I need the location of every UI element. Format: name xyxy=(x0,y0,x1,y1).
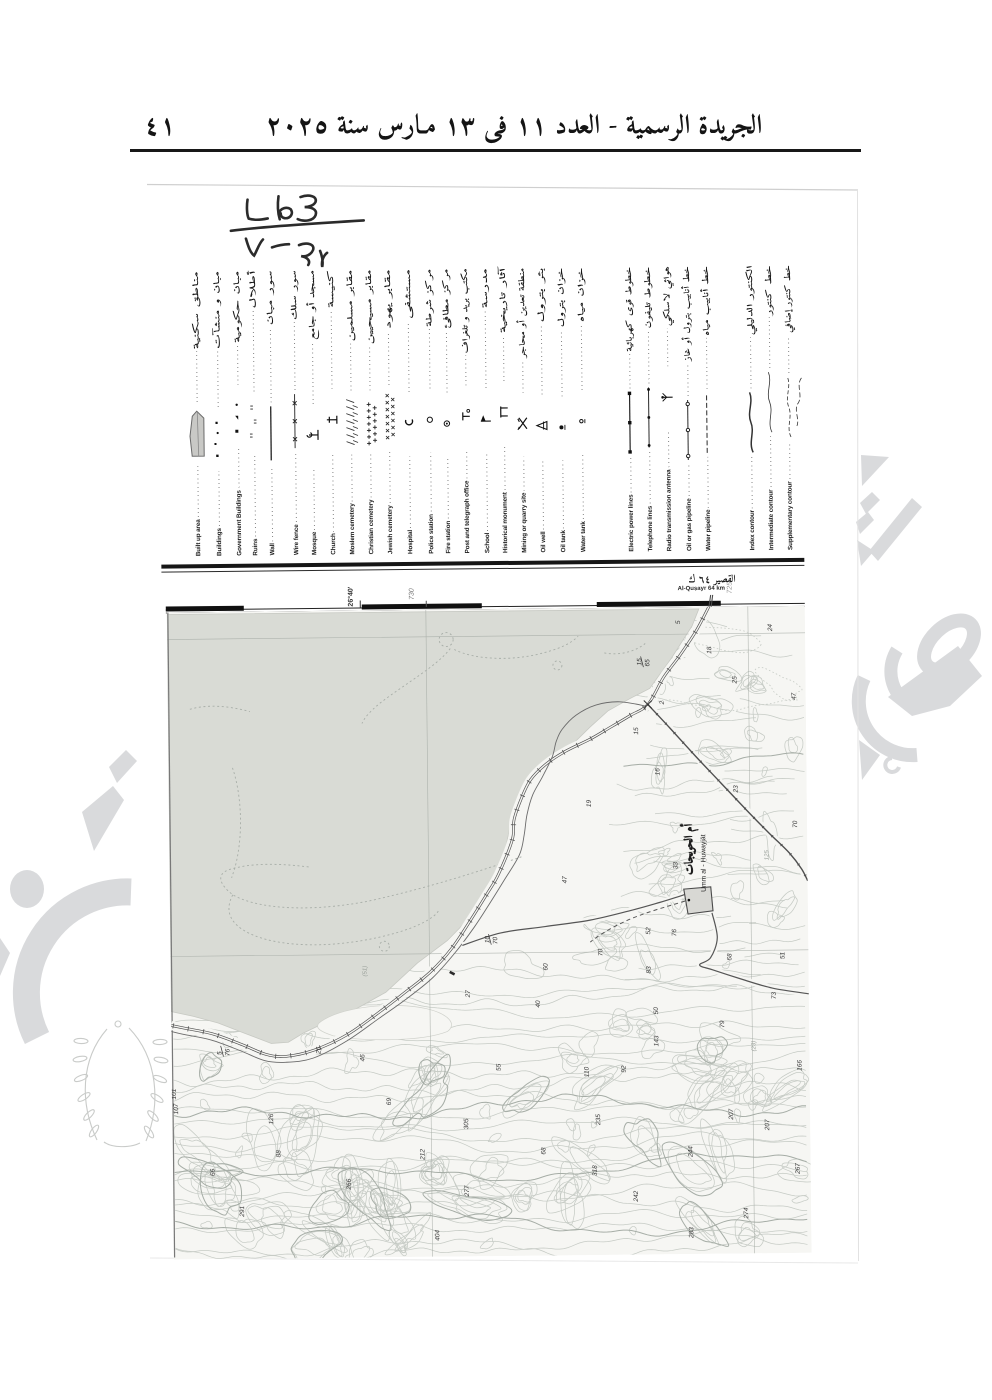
svg-text:(23): (23) xyxy=(751,1041,757,1052)
svg-text:52: 52 xyxy=(645,927,652,935)
svg-text:5: 5 xyxy=(675,620,682,624)
svg-text:2: 2 xyxy=(659,700,666,705)
svg-text:76: 76 xyxy=(671,929,678,937)
svg-text:207: 207 xyxy=(728,1108,735,1120)
svg-text:60: 60 xyxy=(543,963,550,971)
svg-text:318: 318 xyxy=(592,1165,599,1176)
svg-text:70: 70 xyxy=(792,820,799,828)
svg-text:55: 55 xyxy=(496,1063,503,1071)
svg-text:15: 15 xyxy=(633,727,640,735)
svg-text:305: 305 xyxy=(463,1118,470,1129)
svg-text:110: 110 xyxy=(584,1066,591,1077)
svg-text:18: 18 xyxy=(706,646,713,654)
svg-text:107: 107 xyxy=(173,1103,180,1114)
svg-text:83: 83 xyxy=(646,966,653,974)
svg-text:70: 70 xyxy=(597,948,604,956)
svg-text:267: 267 xyxy=(795,1163,802,1175)
svg-text:125: 125 xyxy=(764,850,770,861)
svg-text:47: 47 xyxy=(791,692,798,700)
svg-text:27: 27 xyxy=(465,990,472,999)
svg-text:283: 283 xyxy=(688,1227,695,1239)
svg-text:212: 212 xyxy=(419,1149,426,1161)
svg-text:88: 88 xyxy=(275,1150,282,1158)
svg-text:25: 25 xyxy=(732,676,739,685)
svg-text:73: 73 xyxy=(771,992,778,1000)
svg-text:274: 274 xyxy=(743,1207,750,1219)
svg-text:69: 69 xyxy=(386,1098,393,1106)
svg-text:166: 166 xyxy=(797,1060,804,1071)
svg-text:126: 126 xyxy=(268,1113,275,1124)
svg-text:47: 47 xyxy=(562,876,569,884)
svg-text:Umm al - Ḥuwayjāt: Umm al - Ḥuwayjāt xyxy=(700,834,708,892)
svg-text:(51): (51) xyxy=(363,966,369,977)
svg-text:19: 19 xyxy=(586,799,593,807)
svg-text:50: 50 xyxy=(653,1007,660,1015)
svg-text:101: 101 xyxy=(171,1088,178,1099)
svg-text:68: 68 xyxy=(726,953,733,961)
svg-text:143: 143 xyxy=(653,1035,660,1046)
svg-text:291: 291 xyxy=(239,1205,246,1217)
svg-text:235: 235 xyxy=(595,1114,602,1126)
svg-text:24: 24 xyxy=(767,624,774,633)
svg-text:404: 404 xyxy=(434,1229,441,1240)
svg-text:16: 16 xyxy=(654,768,661,776)
svg-text:242: 242 xyxy=(633,1190,640,1202)
svg-text:23: 23 xyxy=(733,785,740,794)
svg-text:79: 79 xyxy=(719,1020,726,1028)
svg-text:244: 244 xyxy=(687,1146,694,1158)
svg-text:33: 33 xyxy=(672,862,679,870)
svg-text:51: 51 xyxy=(779,951,786,959)
svg-text:76: 76 xyxy=(224,1048,231,1056)
svg-text:207: 207 xyxy=(764,1119,771,1131)
svg-text:40: 40 xyxy=(535,1000,542,1008)
svg-text:277: 277 xyxy=(464,1185,471,1197)
svg-text:26: 26 xyxy=(315,1046,322,1055)
svg-text:46: 46 xyxy=(359,1054,366,1062)
svg-text:68: 68 xyxy=(540,1147,547,1155)
svg-text:92: 92 xyxy=(621,1065,628,1073)
svg-text:65: 65 xyxy=(644,659,651,667)
svg-text:66: 66 xyxy=(210,1168,217,1176)
svg-text:266: 266 xyxy=(346,1178,353,1190)
svg-text:70: 70 xyxy=(492,936,499,944)
